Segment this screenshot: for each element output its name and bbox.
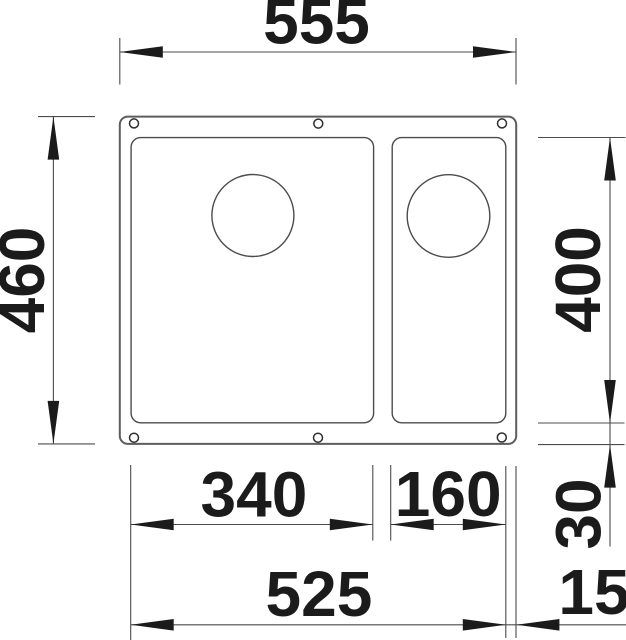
svg-text:30: 30	[542, 478, 614, 549]
svg-text:555: 555	[263, 0, 370, 57]
svg-text:15: 15	[558, 556, 626, 628]
svg-text:340: 340	[201, 459, 308, 531]
svg-text:400: 400	[542, 226, 614, 333]
svg-text:525: 525	[266, 558, 373, 630]
svg-text:160: 160	[395, 458, 502, 530]
svg-text:460: 460	[0, 227, 58, 334]
